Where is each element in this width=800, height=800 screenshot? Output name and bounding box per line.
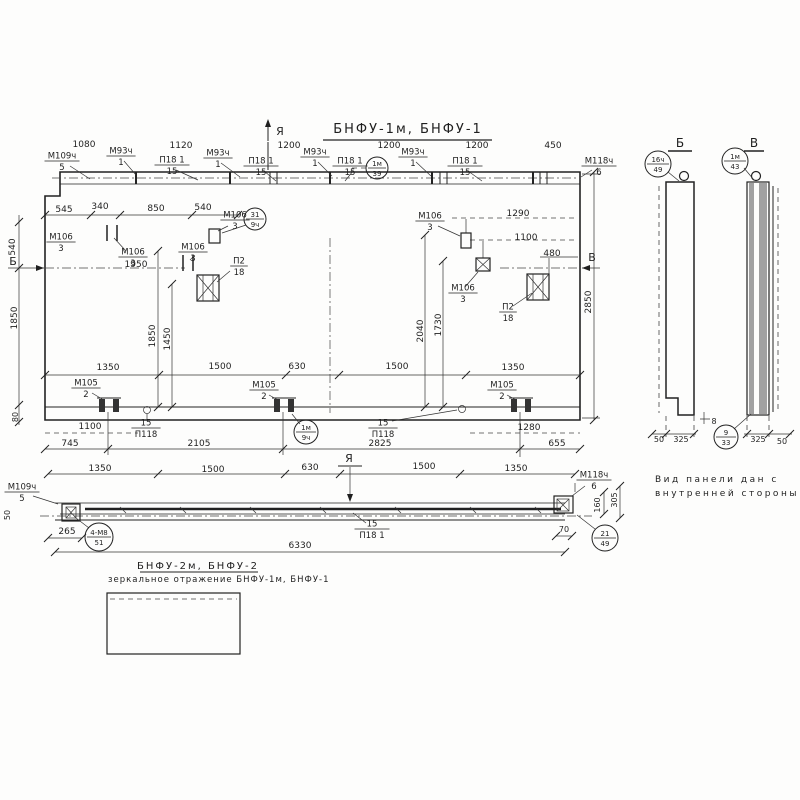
dim-label: 80 bbox=[11, 412, 20, 422]
fraction-bottom: 3 bbox=[460, 295, 465, 305]
dim-label: 1850 bbox=[148, 324, 158, 347]
dim-label: 1730 bbox=[434, 313, 444, 336]
fraction-bottom: 5 bbox=[19, 494, 24, 504]
dim-label: 1120 bbox=[170, 141, 193, 151]
dim-label: 630 bbox=[288, 362, 305, 372]
callout-fraction: 15П118 bbox=[368, 419, 397, 441]
callout-bottom: 39 bbox=[373, 170, 382, 178]
anchor-cross bbox=[476, 258, 490, 271]
callout-bottom: 51 bbox=[95, 539, 104, 547]
circled-callout: 1м43 bbox=[722, 148, 748, 174]
dim-label: 1100 bbox=[79, 422, 102, 432]
fraction-top: М118ч bbox=[585, 157, 614, 167]
fraction-top: М93ч bbox=[401, 148, 424, 158]
callout-fraction: П18 115 bbox=[448, 157, 483, 179]
fraction-top: М106 bbox=[418, 212, 442, 222]
dim-label: 2850 bbox=[584, 290, 594, 313]
mirror-note: зеркальное отражение БНФУ-1м, БНФУ-1 bbox=[108, 575, 329, 585]
dim-label: 630 bbox=[301, 463, 318, 473]
callout-bottom: 49 bbox=[601, 540, 610, 548]
dim-label: 2040 bbox=[416, 319, 426, 342]
fraction-top: П18 1 bbox=[337, 157, 362, 167]
anchor-symbol-m106-1 bbox=[107, 225, 117, 241]
section-arrow-b-label: Б bbox=[9, 255, 17, 268]
anchor-symbol-m106-4 bbox=[461, 233, 471, 248]
dim-label: 340 bbox=[91, 202, 108, 212]
fraction-top: П18 1 bbox=[452, 157, 477, 167]
dim-label: 1500 bbox=[413, 462, 436, 472]
section-arrow-v-label: В bbox=[588, 251, 596, 264]
plan-left-end-detail bbox=[62, 504, 80, 521]
dim-label: 1100 bbox=[515, 233, 538, 243]
panel-drawing-svg: ЯБНФУ-1м, БНФУ-1108011201200120012004505… bbox=[0, 0, 800, 800]
callout-top: 9 bbox=[724, 429, 728, 437]
dim-label: 1500 bbox=[386, 362, 409, 372]
callout-fraction: М1052 bbox=[71, 379, 100, 401]
fraction-bottom: 15 bbox=[460, 168, 471, 178]
section-b-lifting-loop bbox=[680, 172, 689, 181]
drawing-title: БНФУ-1м, БНФУ-1 bbox=[333, 122, 483, 137]
dim-label: 1500 bbox=[202, 465, 225, 475]
view-note-line2: внутренней стороны bbox=[655, 489, 799, 499]
fraction-top: М106 bbox=[121, 248, 145, 258]
plate-detail bbox=[527, 274, 549, 300]
section-v-layer-1 bbox=[749, 183, 754, 414]
dim-label: 545 bbox=[55, 205, 72, 215]
callout-fraction: М93ч1 bbox=[300, 148, 329, 170]
circled-callout: 1м39 bbox=[366, 157, 388, 179]
dim-label: 160 bbox=[593, 497, 602, 512]
anchor-symbol-m105-3 bbox=[509, 398, 533, 412]
fraction-bottom: П118 bbox=[372, 430, 395, 440]
fraction-top: М105 bbox=[490, 381, 514, 391]
dim-label: 70 bbox=[559, 525, 569, 534]
callout-top: 1м bbox=[301, 424, 311, 432]
anchor-symbol-m105-1 bbox=[97, 398, 121, 412]
fraction-bottom: 6 bbox=[596, 168, 601, 178]
fraction-bottom: 1 bbox=[312, 159, 317, 169]
dim-label: 540 bbox=[194, 203, 211, 213]
callout-fraction: 15П18 1 bbox=[355, 520, 390, 542]
circled-callout: 16ч49 bbox=[645, 151, 671, 177]
dim-label: 50 bbox=[654, 435, 664, 444]
callout-fraction: П18 115 bbox=[333, 157, 368, 179]
dim-label: 1280 bbox=[518, 423, 541, 433]
dim-label: 50 bbox=[3, 510, 12, 520]
callout-fraction: М1063 bbox=[415, 212, 444, 234]
fraction-top: П18 1 bbox=[248, 157, 273, 167]
dim-label: 1080 bbox=[73, 140, 96, 150]
callout-fraction: П218 bbox=[230, 257, 248, 279]
callout-top: 1м bbox=[730, 153, 740, 161]
dim-label: 1850 bbox=[10, 306, 20, 329]
fraction-bottom: 15 bbox=[167, 167, 178, 177]
callout-top: 1м bbox=[372, 160, 382, 168]
embed-plate-p2-left bbox=[197, 275, 219, 301]
fraction-top: М105 bbox=[74, 379, 98, 389]
circled-callout: 933 bbox=[714, 425, 738, 449]
fraction-bottom: 6 bbox=[591, 482, 596, 492]
fraction-top: П18 1 bbox=[159, 156, 184, 166]
dim-label: 265 bbox=[58, 527, 75, 537]
section-b-title: Б bbox=[676, 136, 684, 150]
circles-layer: 1м39319ч1м9ч4-М851214916ч491м43933 bbox=[85, 148, 748, 551]
rib-detail-circle-left bbox=[144, 407, 151, 414]
vertical-dim-ticks bbox=[154, 231, 447, 411]
circled-callout: 4-М851 bbox=[85, 523, 113, 551]
dim-label: 325 bbox=[673, 435, 688, 444]
gap-dim-8 bbox=[700, 412, 710, 424]
fraction-top: М105 bbox=[252, 381, 276, 391]
section-arrow-b-head bbox=[36, 265, 44, 271]
dim-label: 480 bbox=[543, 249, 560, 259]
fraction-top: П2 bbox=[502, 303, 514, 313]
fraction-top: М93ч bbox=[109, 147, 132, 157]
callout-fraction: 15П118 bbox=[131, 419, 160, 441]
dim-label: 1200 bbox=[278, 141, 301, 151]
callout-bottom: 9ч bbox=[251, 221, 260, 229]
fraction-top: П2 bbox=[233, 257, 245, 267]
dim-label: 1350 bbox=[89, 464, 112, 474]
callout-top: 31 bbox=[251, 211, 260, 219]
callout-fraction: М109ч5 bbox=[5, 483, 40, 505]
dim-label: 6330 bbox=[289, 541, 312, 551]
fraction-top: 15 bbox=[367, 520, 378, 530]
anchor-leg bbox=[274, 399, 280, 412]
fraction-bottom: 18 bbox=[503, 314, 514, 324]
anchor-leg bbox=[511, 399, 517, 412]
section-marker-ya-plan: Я bbox=[345, 452, 353, 465]
fraction-bottom: 5 bbox=[59, 163, 64, 173]
plate-detail bbox=[197, 275, 219, 301]
dim-label: 325 bbox=[750, 435, 765, 444]
dim-label: 1290 bbox=[507, 209, 530, 219]
dim-label: 1350 bbox=[505, 464, 528, 474]
callout-fraction: М109ч5 bbox=[45, 152, 80, 174]
anchor-leg bbox=[99, 399, 105, 412]
fraction-bottom: 3 bbox=[130, 259, 135, 269]
fraction-top: 15 bbox=[378, 419, 389, 429]
anchor-symbol-m106-5 bbox=[476, 258, 490, 271]
dim-ext-upper-right bbox=[466, 219, 578, 276]
fraction-bottom: 2 bbox=[83, 390, 88, 400]
section-b-outline bbox=[666, 182, 694, 415]
callout-fraction: М118ч6 bbox=[582, 157, 617, 179]
dim-label: 8 bbox=[711, 417, 716, 426]
fraction-bottom: 3 bbox=[427, 223, 432, 233]
ya-plan-arrowhead bbox=[347, 494, 353, 502]
dim-label: 1500 bbox=[209, 362, 232, 372]
ya-arrowhead bbox=[265, 119, 271, 127]
callout-fraction: М93ч1 bbox=[203, 149, 232, 171]
dim-label: 1200 bbox=[378, 141, 401, 151]
fraction-bottom: 15 bbox=[345, 168, 356, 178]
dim-line-bottom-2 bbox=[45, 412, 580, 457]
fraction-bottom: 1 bbox=[215, 160, 220, 170]
fraction-top: М109ч bbox=[8, 483, 37, 493]
callout-fraction: М1052 bbox=[487, 381, 516, 403]
callout-fraction: П218 bbox=[499, 303, 517, 325]
fraction-top: М106 bbox=[49, 233, 73, 243]
dim-label: 850 bbox=[147, 204, 164, 214]
end-cross bbox=[557, 499, 569, 511]
fraction-bottom: 2 bbox=[261, 392, 266, 402]
callout-top: 4-М8 bbox=[90, 529, 107, 537]
dim-label: 50 bbox=[777, 437, 787, 446]
fraction-top: М93ч bbox=[303, 148, 326, 158]
callout-fraction: М1052 bbox=[249, 381, 278, 403]
anchor-leg bbox=[288, 399, 294, 412]
dim-label: 1200 bbox=[466, 141, 489, 151]
callout-fraction: М93ч1 bbox=[398, 148, 427, 170]
fraction-top: М106 bbox=[223, 211, 247, 221]
section-b-view bbox=[648, 151, 710, 438]
plan-right-end-detail bbox=[554, 496, 573, 513]
dim-label: 655 bbox=[548, 439, 565, 449]
fraction-bottom: 1 bbox=[410, 159, 415, 169]
callout-fraction: М1063 bbox=[448, 284, 477, 306]
section-arrow-v-head bbox=[582, 265, 590, 271]
view-note-line1: Вид панели дан с bbox=[655, 475, 779, 485]
circled-callout: 1м9ч bbox=[294, 420, 318, 444]
fraction-top: М118ч bbox=[580, 471, 609, 481]
anchor-leg bbox=[113, 399, 119, 412]
callout-bottom: 43 bbox=[731, 163, 740, 171]
fraction-bottom: 2 bbox=[499, 392, 504, 402]
fraction-top: 15 bbox=[141, 419, 152, 429]
callout-bottom: 9ч bbox=[302, 434, 311, 442]
section-v-layer-2 bbox=[759, 183, 767, 414]
dim-label: 1350 bbox=[97, 363, 120, 373]
anchor-symbol-m105-2 bbox=[272, 398, 296, 412]
fraction-top: М106 bbox=[451, 284, 475, 294]
mirror-panel-rect bbox=[107, 593, 240, 654]
callout-bottom: 49 bbox=[654, 166, 663, 174]
callout-fraction: П18 115 bbox=[244, 157, 279, 179]
dim-label: 2105 bbox=[188, 439, 211, 449]
fraction-bottom: 1 bbox=[118, 158, 123, 168]
vertical-dim-lines bbox=[158, 235, 443, 407]
fraction-top: М93ч bbox=[206, 149, 229, 159]
callout-fraction: М1063 bbox=[46, 233, 75, 255]
fraction-bottom: 3 bbox=[232, 222, 237, 232]
dim-label: 1350 bbox=[502, 363, 525, 373]
callout-top: 16ч bbox=[651, 156, 664, 164]
section-v-title: В bbox=[750, 136, 758, 150]
circled-callout: 319ч bbox=[244, 208, 266, 230]
dim-label: 540 bbox=[8, 238, 18, 255]
dim-label: 1950 bbox=[125, 260, 148, 270]
section-b-leader bbox=[668, 172, 679, 181]
fraction-bottom: 3 bbox=[190, 254, 195, 264]
callout-bottom: 33 bbox=[722, 439, 731, 447]
mirror-title: БНФУ-2м, БНФУ-2 bbox=[137, 561, 259, 572]
plan-leaders bbox=[33, 486, 595, 529]
fraction-top: М106 bbox=[181, 243, 205, 253]
anchor-leg bbox=[525, 399, 531, 412]
fraction-top: М109ч bbox=[48, 152, 77, 162]
section-marker-ya-top: Я bbox=[276, 125, 284, 138]
fraction-bottom: П118 bbox=[135, 430, 158, 440]
labels-layer: ЯБНФУ-1м, БНФУ-1108011201200120012004505… bbox=[3, 122, 799, 585]
section-v-view bbox=[734, 151, 794, 438]
blueprint-sheet: ЯБНФУ-1м, БНФУ-1108011201200120012004505… bbox=[0, 0, 800, 800]
embed-plate-p2-right bbox=[527, 274, 549, 300]
dim-label: 2825 bbox=[369, 439, 392, 449]
dim-label: 305 bbox=[610, 492, 619, 507]
fraction-bottom: 15 bbox=[256, 168, 267, 178]
callout-fraction: М93ч1 bbox=[106, 147, 135, 169]
dim-label: 1450 bbox=[163, 327, 173, 350]
fraction-bottom: 3 bbox=[58, 244, 63, 254]
circled-callout: 2149 bbox=[592, 525, 618, 551]
fraction-bottom: 18 bbox=[234, 268, 245, 278]
dim-label: 450 bbox=[544, 141, 561, 151]
dim-label: 745 bbox=[61, 439, 78, 449]
plan-view bbox=[33, 466, 624, 556]
callout-top: 21 bbox=[601, 530, 610, 538]
fraction-bottom: П18 1 bbox=[359, 531, 384, 541]
